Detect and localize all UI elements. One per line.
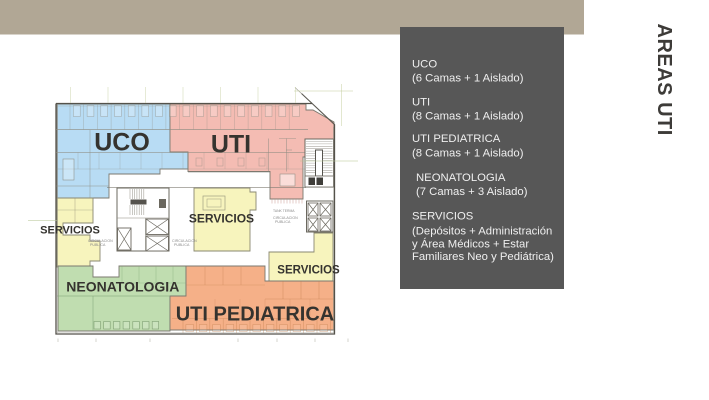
svg-text:SERVICIOS: SERVICIOS bbox=[412, 211, 474, 223]
svg-text:NEONATOLOGIA: NEONATOLOGIA bbox=[66, 279, 179, 295]
svg-text:SERVICIOS: SERVICIOS bbox=[189, 212, 254, 226]
svg-text:SERVICIOS: SERVICIOS bbox=[277, 265, 340, 277]
svg-text:UCO: UCO bbox=[94, 129, 150, 157]
svg-text:NEONATOLOGIA: NEONATOLOGIA bbox=[416, 172, 506, 184]
svg-text:UTI PEDIATRICA: UTI PEDIATRICA bbox=[176, 304, 335, 326]
svg-text:PUBLICA: PUBLICA bbox=[90, 243, 106, 247]
svg-text:TANK TERMA: TANK TERMA bbox=[273, 209, 295, 213]
svg-text:PUBLICA: PUBLICA bbox=[174, 243, 190, 247]
svg-text:(7 Camas + 3 Aislado): (7 Camas + 3 Aislado) bbox=[416, 186, 528, 198]
svg-text:UCO: UCO bbox=[412, 59, 437, 71]
svg-text:UTI PEDIATRICA: UTI PEDIATRICA bbox=[412, 133, 501, 145]
svg-text:(6 Camas + 1 Aislado): (6 Camas + 1 Aislado) bbox=[412, 73, 524, 85]
svg-text:Familiares Neo y Pediátrica): Familiares Neo y Pediátrica) bbox=[412, 251, 554, 263]
svg-text:UTI: UTI bbox=[211, 131, 251, 159]
svg-text:(8 Camas + 1 Aislado): (8 Camas + 1 Aislado) bbox=[412, 148, 524, 160]
svg-text:y Área Médicos + Estar: y Área Médicos + Estar bbox=[412, 238, 529, 251]
svg-text:UTI: UTI bbox=[412, 97, 430, 109]
svg-text:(Depósitos + Administración: (Depósitos + Administración bbox=[412, 226, 552, 238]
svg-text:SERVICIOS: SERVICIOS bbox=[40, 225, 100, 237]
svg-text:(8 Camas + 1 Aislado): (8 Camas + 1 Aislado) bbox=[412, 111, 524, 123]
svg-text:PUBLICA: PUBLICA bbox=[275, 220, 291, 224]
svg-text:AREAS UTI: AREAS UTI bbox=[653, 24, 675, 136]
